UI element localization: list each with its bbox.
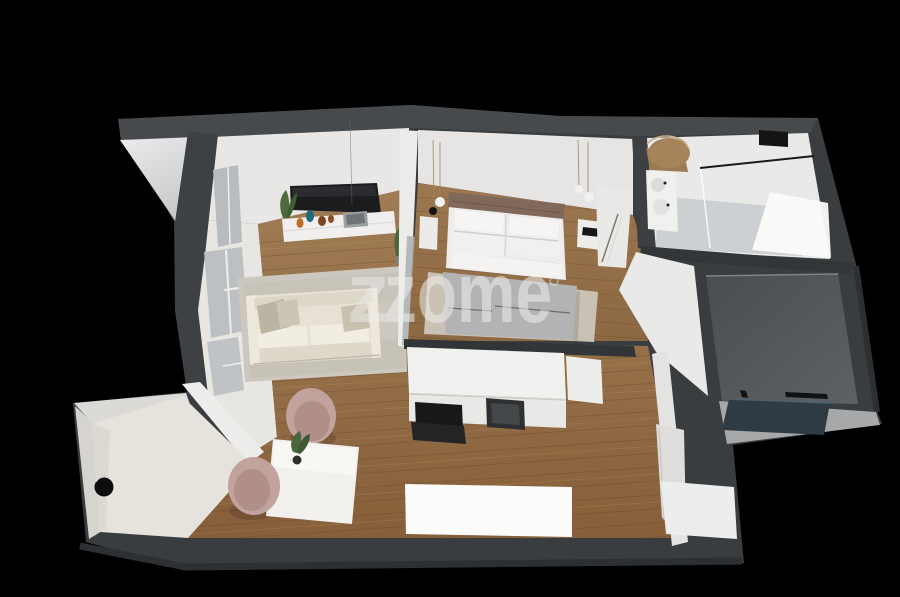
svg-text:zome: zome (384, 246, 552, 341)
